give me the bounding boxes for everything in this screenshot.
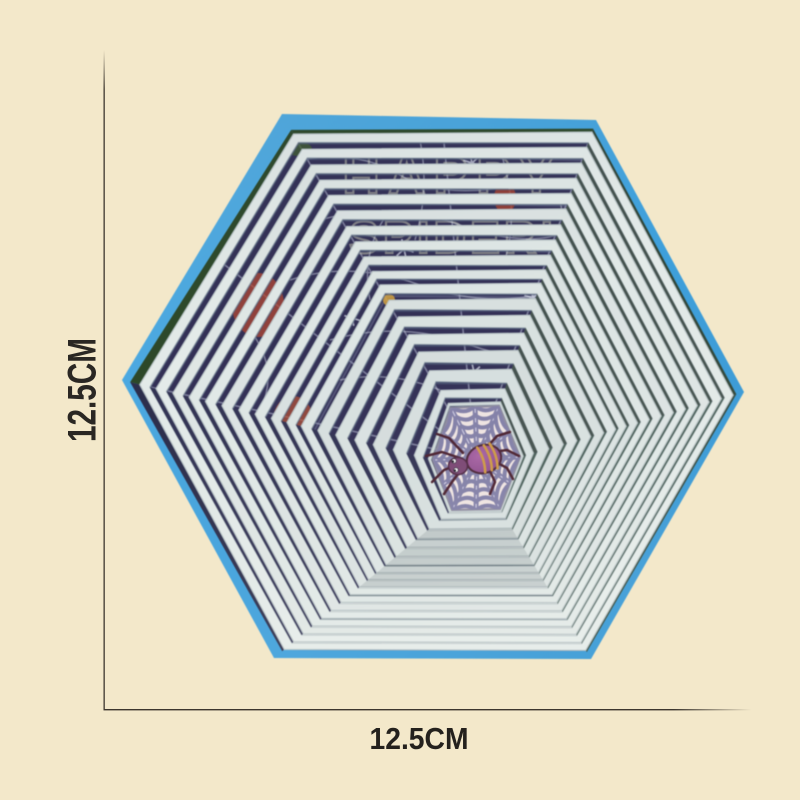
svg-text:12.5CM: 12.5CM xyxy=(61,338,105,442)
svg-text:12.5CM: 12.5CM xyxy=(370,722,469,756)
